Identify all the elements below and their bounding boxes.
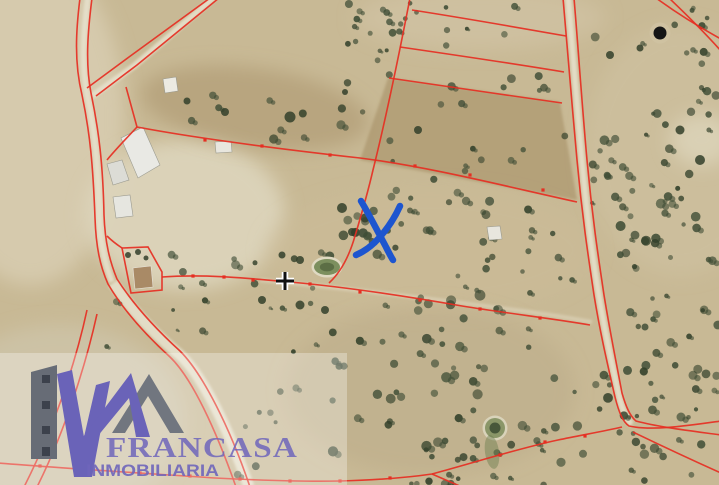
logo-building-icon	[31, 365, 57, 459]
aerial-map-view: FRANCASA INMOBILIARIA	[0, 0, 719, 485]
brand-tagline: INMOBILIARIA	[86, 461, 219, 480]
agency-logo: FRANCASA INMOBILIARIA	[0, 353, 347, 485]
brand-name: FRANCASA	[106, 433, 298, 464]
watermark-overlay: FRANCASA INMOBILIARIA	[0, 353, 347, 485]
